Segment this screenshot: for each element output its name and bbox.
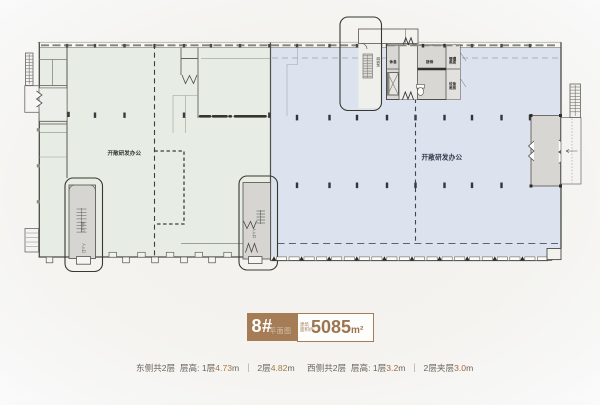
svg-text:接待: 接待 (426, 59, 434, 64)
svg-text:用房: 用房 (448, 60, 457, 65)
svg-text:用房: 用房 (448, 85, 457, 90)
svg-text:开敞研发办公: 开敞研发办公 (422, 153, 463, 162)
svg-text:人入口: 人入口 (252, 228, 257, 238)
svg-text:休息: 休息 (389, 59, 398, 64)
svg-text:开敞研发办公: 开敞研发办公 (108, 149, 142, 157)
svg-text:楼梯间: 楼梯间 (376, 57, 381, 68)
svg-text:人入口: 人入口 (82, 243, 87, 253)
svg-text:货入口: 货入口 (81, 222, 86, 232)
